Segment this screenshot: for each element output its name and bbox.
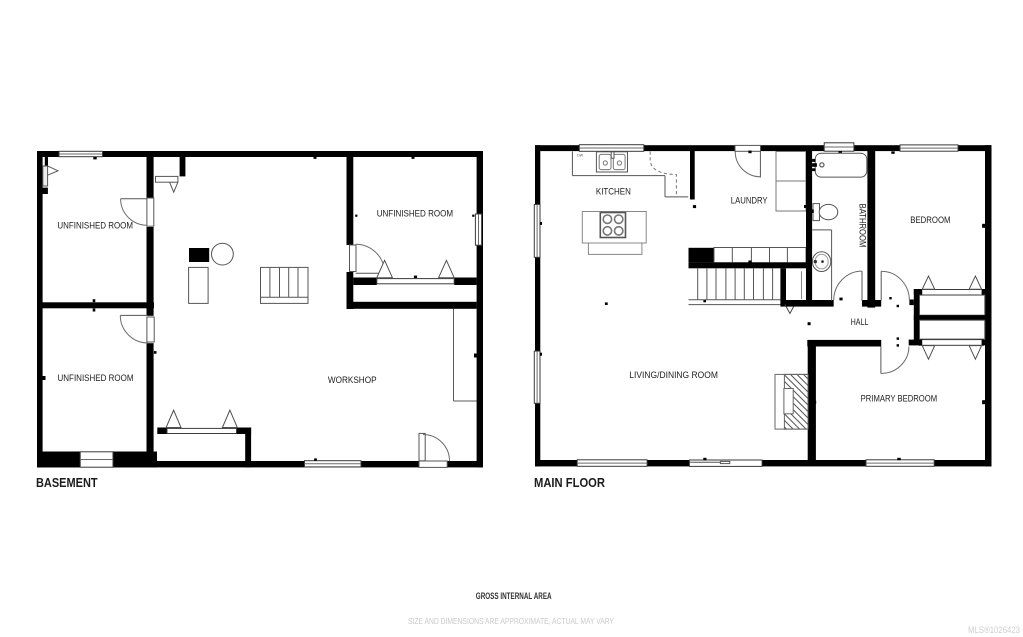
svg-text:BASEMENT: BASEMENT: [36, 476, 98, 490]
svg-text:BEDROOM: BEDROOM: [910, 215, 950, 225]
svg-text:KITCHEN: KITCHEN: [596, 186, 631, 196]
svg-text:LIVING/DINING ROOM: LIVING/DINING ROOM: [629, 370, 718, 380]
svg-text:MLS®1026423: MLS®1026423: [968, 625, 1020, 635]
svg-text:SIZE AND DIMENSIONS ARE APPROX: SIZE AND DIMENSIONS ARE APPROXIMATE, ACT…: [408, 617, 615, 626]
svg-text:UNFINISHED ROOM: UNFINISHED ROOM: [377, 208, 453, 218]
svg-text:LAUNDRY: LAUNDRY: [731, 196, 768, 206]
svg-text:UNFINISHED ROOM: UNFINISHED ROOM: [57, 221, 133, 231]
svg-text:UNFINISHED ROOM: UNFINISHED ROOM: [58, 373, 134, 383]
svg-text:HALL: HALL: [851, 317, 869, 327]
svg-text:MAIN FLOOR: MAIN FLOOR: [534, 476, 605, 490]
svg-text:WORKSHOP: WORKSHOP: [328, 375, 377, 385]
svg-text:PRIMARY BEDROOM: PRIMARY BEDROOM: [861, 393, 938, 403]
svg-text:BATHROOM: BATHROOM: [857, 204, 867, 248]
svg-text:DW: DW: [577, 153, 584, 157]
svg-text:GROSS INTERNAL AREA: GROSS INTERNAL AREA: [476, 591, 552, 601]
